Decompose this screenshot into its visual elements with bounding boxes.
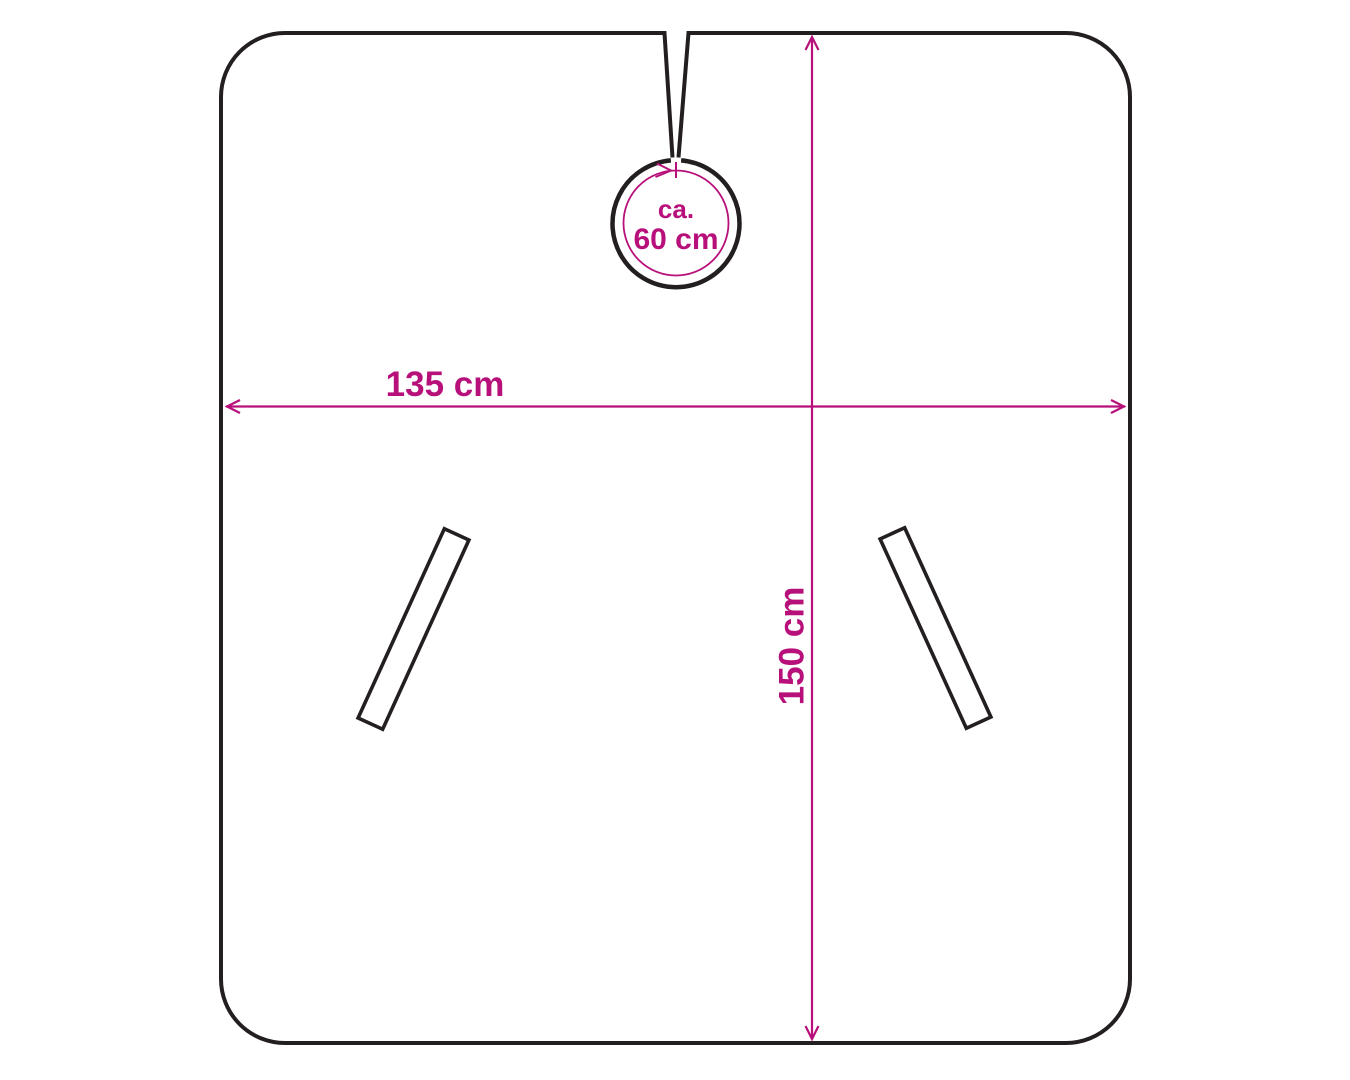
neck-circumference-arrowhead <box>656 164 672 178</box>
right-hand-slit <box>880 528 991 728</box>
right-hand-slit-outline <box>880 528 991 728</box>
cape-dimension-diagram: ca. 60 cm 135 cm 150 cm <box>0 0 1350 1080</box>
left-hand-slit-outline <box>358 529 469 729</box>
neck-circumference-prefix-label: ca. <box>658 194 694 224</box>
cape-diagram-canvas: ca. 60 cm 135 cm 150 cm <box>0 0 1350 1080</box>
width-dimension-label: 135 cm <box>386 365 505 404</box>
neck-circumference-value-label: 60 cm <box>633 223 718 256</box>
cape-outline <box>221 33 1130 1043</box>
width-dimension: 135 cm <box>226 365 1125 413</box>
left-hand-slit <box>358 529 469 729</box>
height-dimension: 150 cm <box>773 37 819 1039</box>
height-dimension-label: 150 cm <box>773 587 812 706</box>
